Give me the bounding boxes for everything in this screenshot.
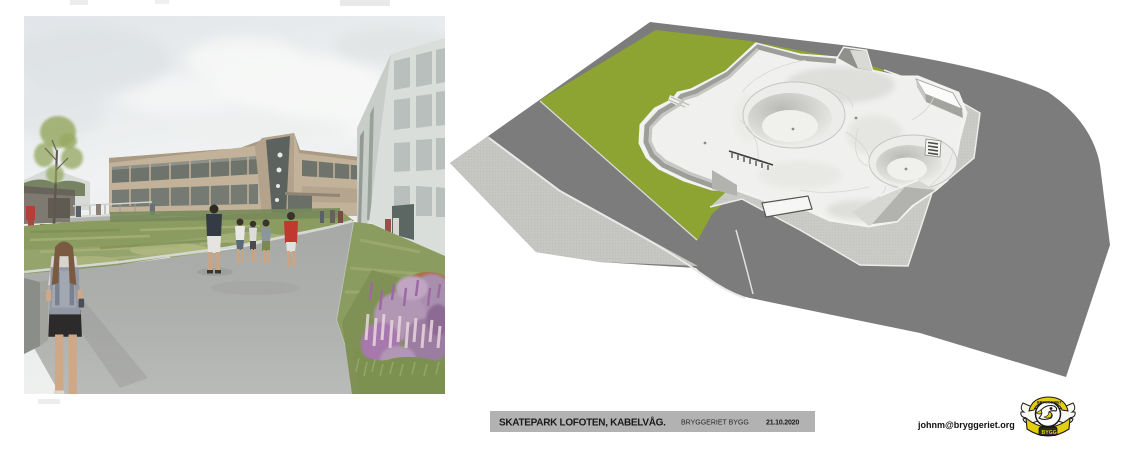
- svg-text:SKATEPARK LOFOTEN, KABELVÅG.: SKATEPARK LOFOTEN, KABELVÅG.: [499, 416, 666, 429]
- svg-text:johnm@bryggeriet.org: johnm@bryggeriet.org: [917, 420, 1015, 430]
- svg-text:BRYGGERIET: BRYGGERIET: [1037, 401, 1063, 405]
- svg-text:BYGG: BYGG: [1042, 430, 1057, 436]
- svg-text:21.10.2020: 21.10.2020: [766, 420, 799, 427]
- svg-text:BRYGGERIET BYGG: BRYGGERIET BYGG: [681, 420, 749, 427]
